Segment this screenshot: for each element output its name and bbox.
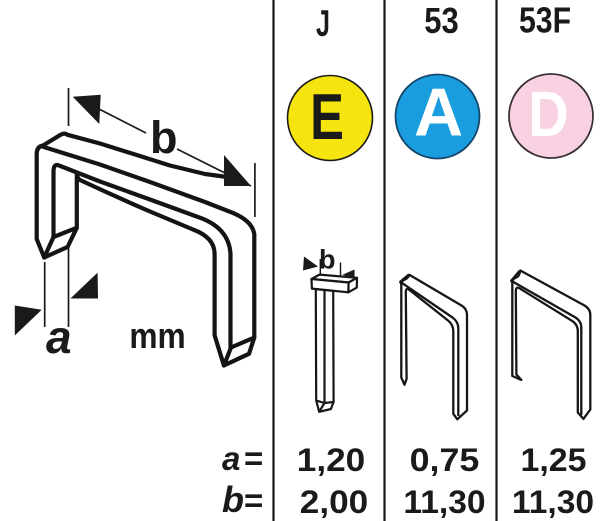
svg-text:53F: 53F (519, 1, 571, 41)
svg-text:=: = (244, 482, 263, 519)
svg-text:11,30: 11,30 (403, 484, 485, 520)
svg-text:2,00: 2,00 (300, 485, 368, 520)
svg-text:A: A (414, 75, 463, 151)
svg-text:J: J (316, 2, 330, 44)
svg-text:=: = (244, 440, 263, 477)
svg-text:mm: mm (129, 316, 185, 356)
svg-text:1,25: 1,25 (520, 442, 586, 478)
svg-text:53: 53 (424, 2, 458, 42)
svg-text:E: E (310, 81, 344, 153)
svg-text:a: a (46, 311, 72, 363)
svg-text:b: b (150, 112, 178, 163)
svg-text:b: b (222, 479, 244, 520)
svg-text:0,75: 0,75 (410, 443, 480, 479)
svg-text:D: D (528, 79, 568, 150)
svg-text:1,20: 1,20 (297, 443, 365, 478)
svg-text:a: a (222, 440, 240, 477)
svg-text:b: b (319, 245, 336, 275)
svg-text:11,30: 11,30 (512, 484, 594, 520)
